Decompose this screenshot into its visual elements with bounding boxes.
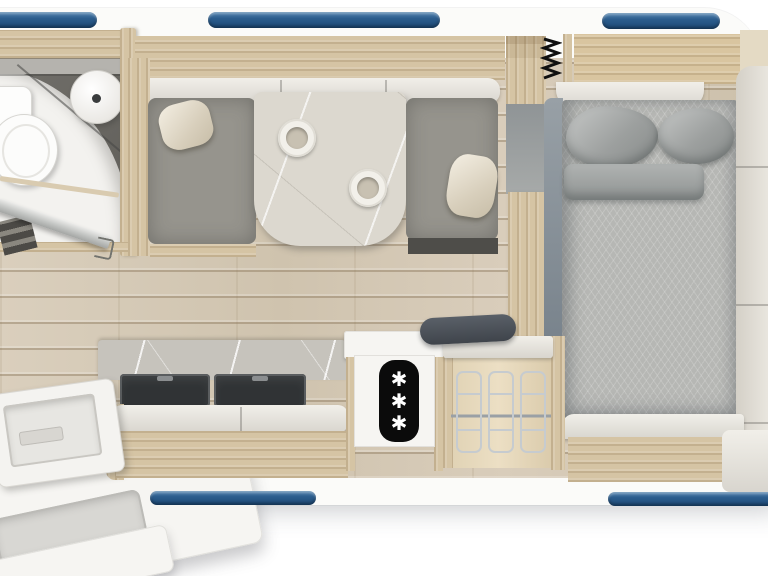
heater-coil-icon [540,37,562,81]
cup-holder [349,169,387,207]
kitchen-glass-lid-right [214,374,306,407]
bed-foot-bench-top [562,414,744,439]
caravan-floorplan-image: ✱ ✱ ✱ [0,0,768,576]
dinette-table [254,92,406,246]
lid-handle [252,376,268,381]
bench-side-panel-left [128,58,150,256]
dinette-overhead-locker-wood [135,36,505,80]
locker-seam [736,304,768,306]
wire-baskets-icon [451,364,551,462]
fridge-unit: ✱ ✱ ✱ [342,331,446,471]
toilet-seat-ring [2,124,50,178]
window-top-middle [208,12,440,28]
snowflake-icon: ✱ [391,391,408,411]
locker-seam [736,166,768,168]
locker-seam [240,407,242,431]
bathroom-top-cabinet [0,30,122,58]
wardrobe-wall-right [551,336,565,470]
snowflake-icon: ✱ [391,413,408,433]
cup-holder [278,119,316,157]
bed-duvet [564,164,704,200]
window-top-right [602,13,720,29]
bed-foot-bench-front [568,437,722,482]
lid-handle [157,376,173,381]
kitchen-locker-top [112,405,348,433]
window-bottom-left [150,491,316,505]
bed-alcove-shadow [506,104,544,194]
bed-foot-corner [722,430,768,492]
kitchen-locker-front [116,431,348,478]
kitchen-sink-tray [0,378,126,489]
fridge-leg-right [434,357,443,471]
kitchen-glass-lid-left [120,374,210,407]
window-bottom-right [608,492,768,506]
snowflake-icon: ✱ [391,369,408,389]
bed-overhead-locker-wood [574,34,742,84]
cup-holder-well [357,177,379,199]
wardrobe-unit [443,336,565,470]
bolster-cushion [419,314,516,346]
fridge-snowflake-badge: ✱ ✱ ✱ [379,360,419,442]
right-bench-front [408,238,498,254]
left-bench-base [150,244,256,257]
basin-drain [92,94,101,103]
cup-holder-well [286,127,308,149]
window-top-left [0,12,97,28]
